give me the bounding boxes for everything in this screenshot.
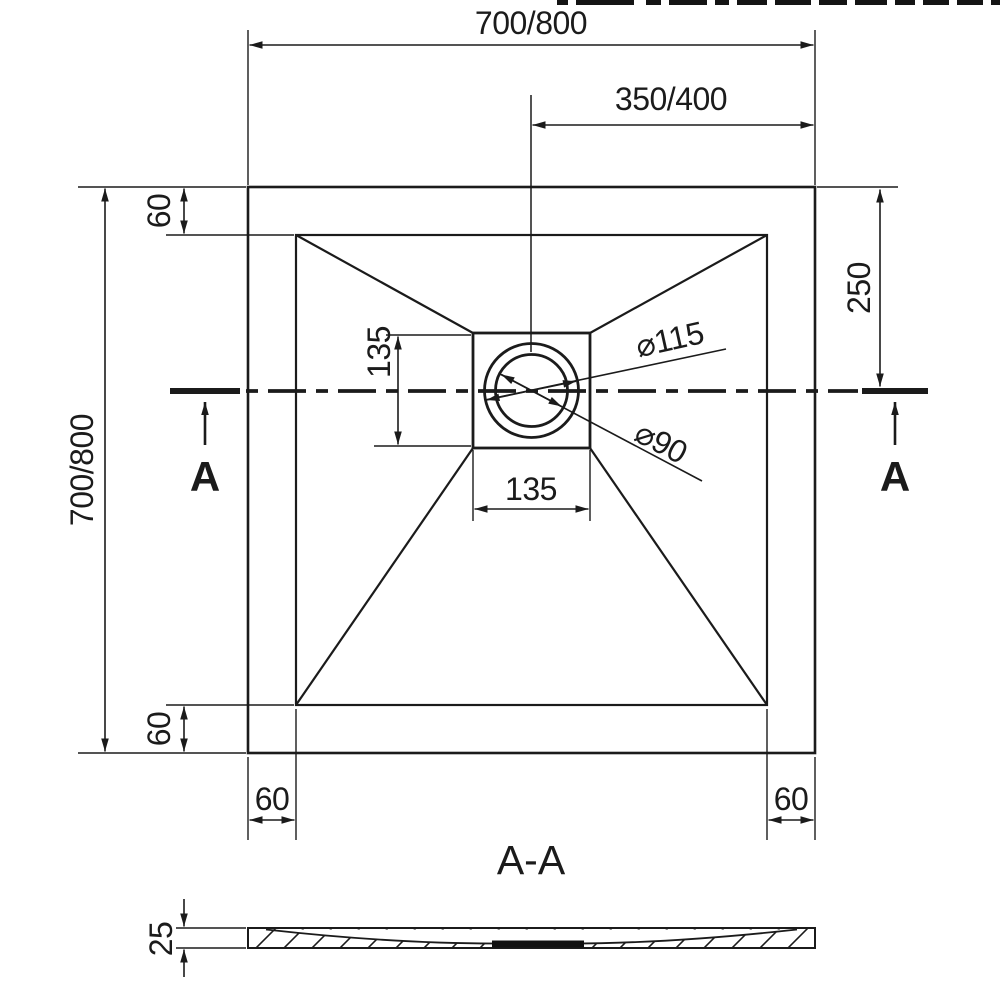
dim-rim-top: 60 <box>141 189 294 236</box>
dim-center-to-edge: 350/400 <box>533 81 814 125</box>
technical-drawing: A A 700/800 350/400 <box>0 0 1000 1000</box>
dim-top-width-label: 700/800 <box>475 5 587 41</box>
dim-waste-diameter-label: ⌀90 <box>629 414 693 471</box>
top-edge-artifact <box>557 0 1000 5</box>
section-marker-right-label: A <box>880 453 910 500</box>
dim-drain-square-height-label: 135 <box>361 326 397 378</box>
dim-drain-square-width-label: 135 <box>505 471 557 507</box>
section-drain-outlet <box>492 941 584 948</box>
plan-view: A A <box>170 95 928 753</box>
dim-thickness: 25 <box>143 899 246 977</box>
dim-drain-from-top: 250 <box>817 187 898 387</box>
dim-drain-from-top-label: 250 <box>841 262 877 314</box>
dim-rim-left: 60 <box>248 709 296 840</box>
section-view: A-A 25 <box>143 837 815 977</box>
dim-drain-square-height: 135 <box>361 326 471 446</box>
dim-flange-diameter-label: ⌀115 <box>632 314 706 364</box>
dim-rim-bottom-label: 60 <box>141 712 177 747</box>
section-marker-left-label: A <box>190 453 220 500</box>
dim-rim-left-label: 60 <box>255 781 290 817</box>
section-title: A-A <box>497 837 566 883</box>
dimensions: 700/800 350/400 700/800 60 <box>64 5 898 840</box>
dim-left-height-label: 700/800 <box>64 414 100 526</box>
dim-rim-bottom: 60 <box>141 705 294 752</box>
dim-center-to-edge-label: 350/400 <box>615 81 727 117</box>
dim-rim-right-label: 60 <box>774 781 809 817</box>
dim-rim-right: 60 <box>767 709 815 840</box>
dim-thickness-label: 25 <box>143 922 179 957</box>
drawing-canvas: A A 700/800 350/400 <box>0 0 1000 1000</box>
dim-rim-top-label: 60 <box>141 194 177 229</box>
dim-drain-square-width: 135 <box>473 450 590 521</box>
